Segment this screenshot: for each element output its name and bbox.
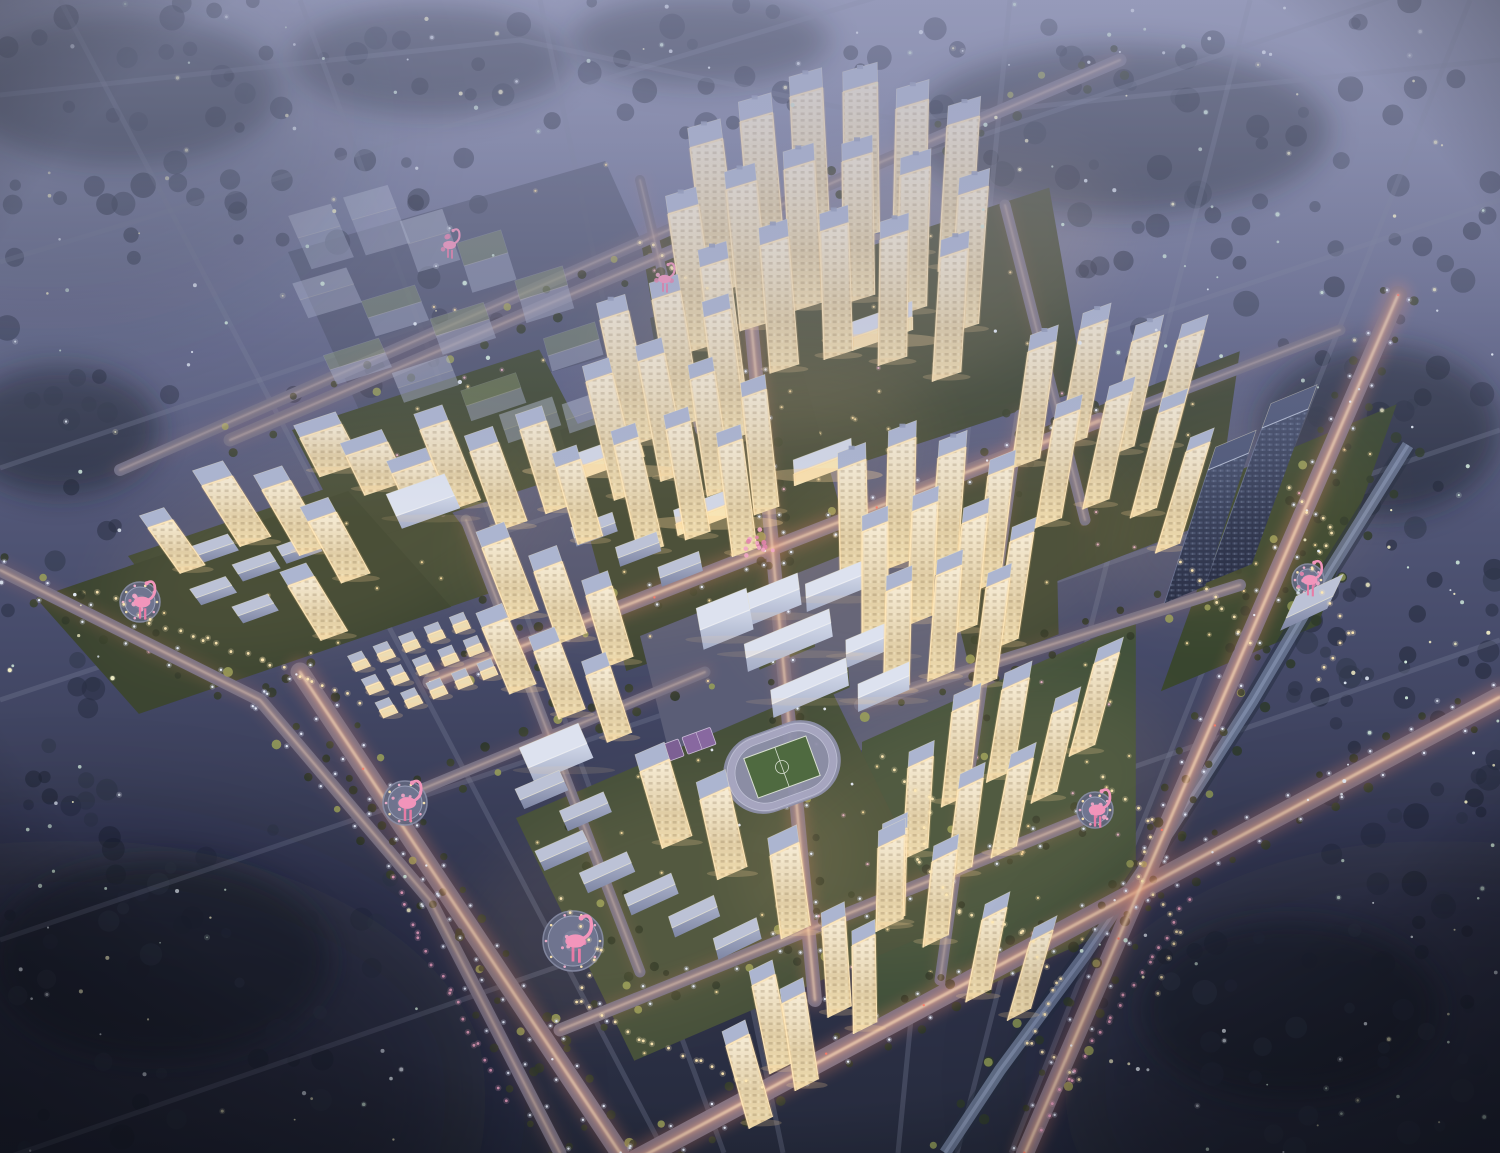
layer-haze	[0, 0, 1500, 1153]
aerial-city-render	[0, 0, 1500, 1153]
vignette	[0, 0, 1500, 1153]
render-canvas	[0, 0, 1500, 1153]
